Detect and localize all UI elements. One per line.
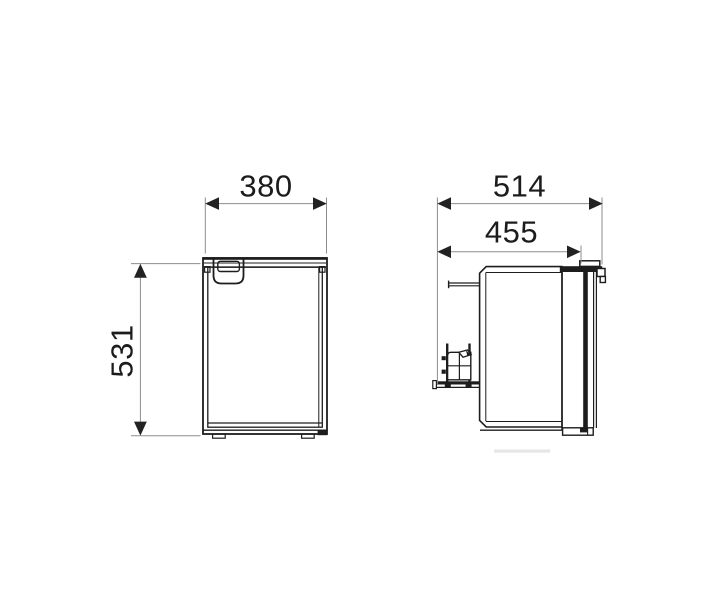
arrowhead-left <box>437 197 451 210</box>
door-handle <box>214 258 244 284</box>
refrigerator-dimension-drawing: 380 531 <box>0 0 720 612</box>
compressor-knob-top <box>442 356 446 360</box>
dimension-label-height: 531 <box>105 324 140 377</box>
compressor-knob-bottom <box>442 370 446 374</box>
compressor-unit <box>433 344 480 389</box>
door-gasket-bar <box>583 272 588 428</box>
base-corner-block <box>318 430 328 435</box>
dimension-label-body-depth: 455 <box>485 215 538 250</box>
arrowhead-left <box>205 197 219 210</box>
dimension-label-overall-depth: 514 <box>493 169 546 204</box>
arrowhead-right <box>567 246 581 259</box>
bracket-bar <box>434 381 480 384</box>
bracket-foot-right <box>466 385 472 388</box>
dimension-side-body-depth: 455 <box>437 215 581 264</box>
dimension-label-width: 380 <box>239 169 292 204</box>
arrowhead-left <box>437 246 451 259</box>
hinge-clip-lower <box>600 277 605 283</box>
rear-pipe <box>449 281 480 289</box>
door-bottom-cap <box>563 428 594 435</box>
dimension-front-height: 531 <box>105 264 201 436</box>
floor-shadow <box>494 450 550 453</box>
door-outline <box>208 267 322 427</box>
cabinet-top-edge <box>203 257 327 260</box>
body-inner-line <box>486 273 562 422</box>
arrowhead-bottom <box>134 422 147 436</box>
side-door <box>560 261 606 435</box>
arrowhead-right <box>589 197 603 210</box>
bracket-end-plate <box>433 381 437 389</box>
drawing-canvas: 380 531 <box>0 0 720 612</box>
arrowhead-top <box>134 264 147 278</box>
bracket-foot-left <box>445 385 451 388</box>
door-front-face <box>594 272 597 428</box>
arrowhead-right <box>313 197 327 210</box>
side-view <box>433 261 606 453</box>
front-view <box>203 257 327 438</box>
body-outline <box>480 267 562 427</box>
door-top-tab <box>580 261 600 267</box>
hinge-clip-upper <box>597 269 605 277</box>
dimension-front-width: 380 <box>205 169 327 254</box>
door-bottom-dark <box>580 428 588 433</box>
